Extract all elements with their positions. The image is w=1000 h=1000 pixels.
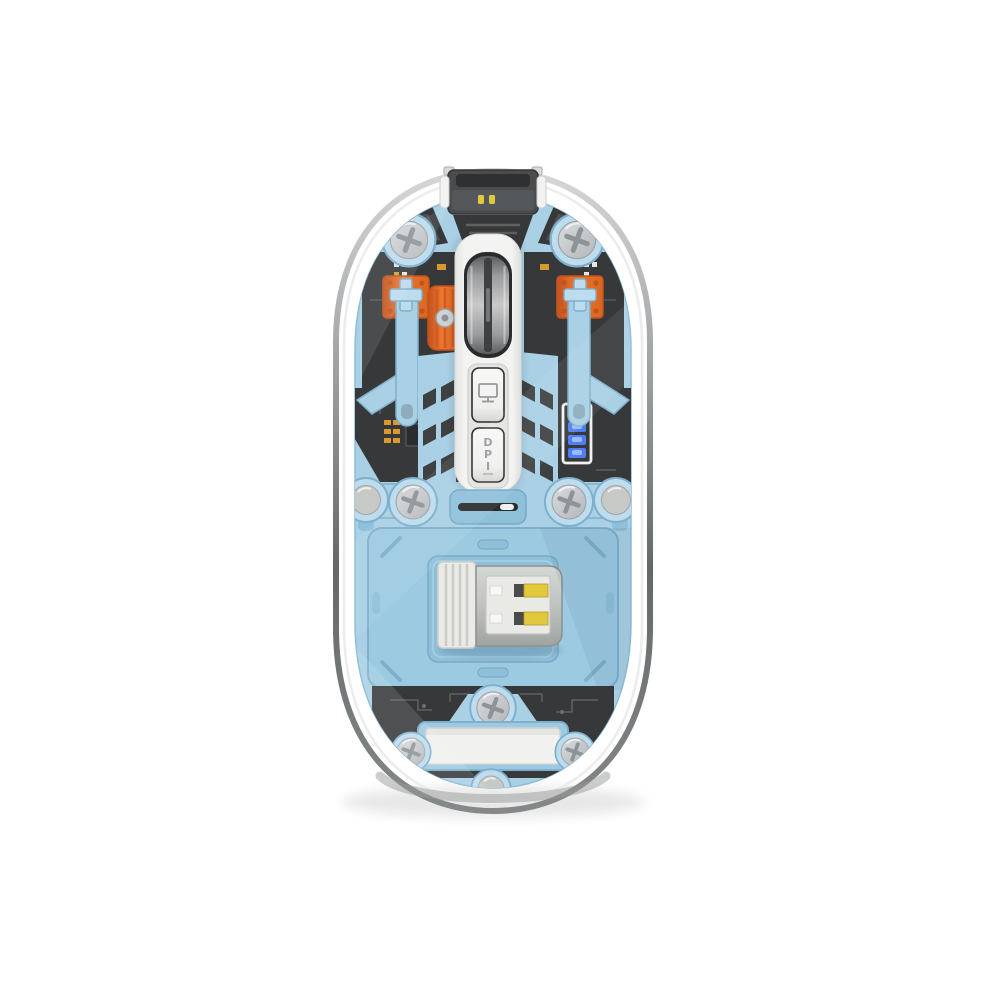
mouse-foot: [344, 478, 388, 522]
plate-handle-notch: [478, 668, 508, 677]
charging-contact: [489, 195, 495, 204]
dongle-cap: [438, 562, 476, 648]
usb-c-opening: [456, 174, 530, 187]
phillips-screw: [551, 214, 604, 267]
mode-button: [472, 368, 504, 422]
phillips-screw: [545, 478, 593, 526]
mouse-product-photo: D P I: [0, 0, 1000, 1000]
product-photo-transparent-mouse: D P I: [0, 0, 1000, 1000]
plate-handle-notch: [478, 540, 508, 549]
charging-contact: [478, 195, 484, 204]
usb-c-charging-port: [440, 167, 546, 214]
scroll-wheel: [464, 252, 512, 358]
usb-receiver-dongle: [438, 562, 562, 658]
power-slider: [500, 504, 514, 510]
phillips-screw: [555, 732, 594, 771]
port-bracket: [537, 176, 546, 208]
port-bracket: [440, 176, 449, 208]
